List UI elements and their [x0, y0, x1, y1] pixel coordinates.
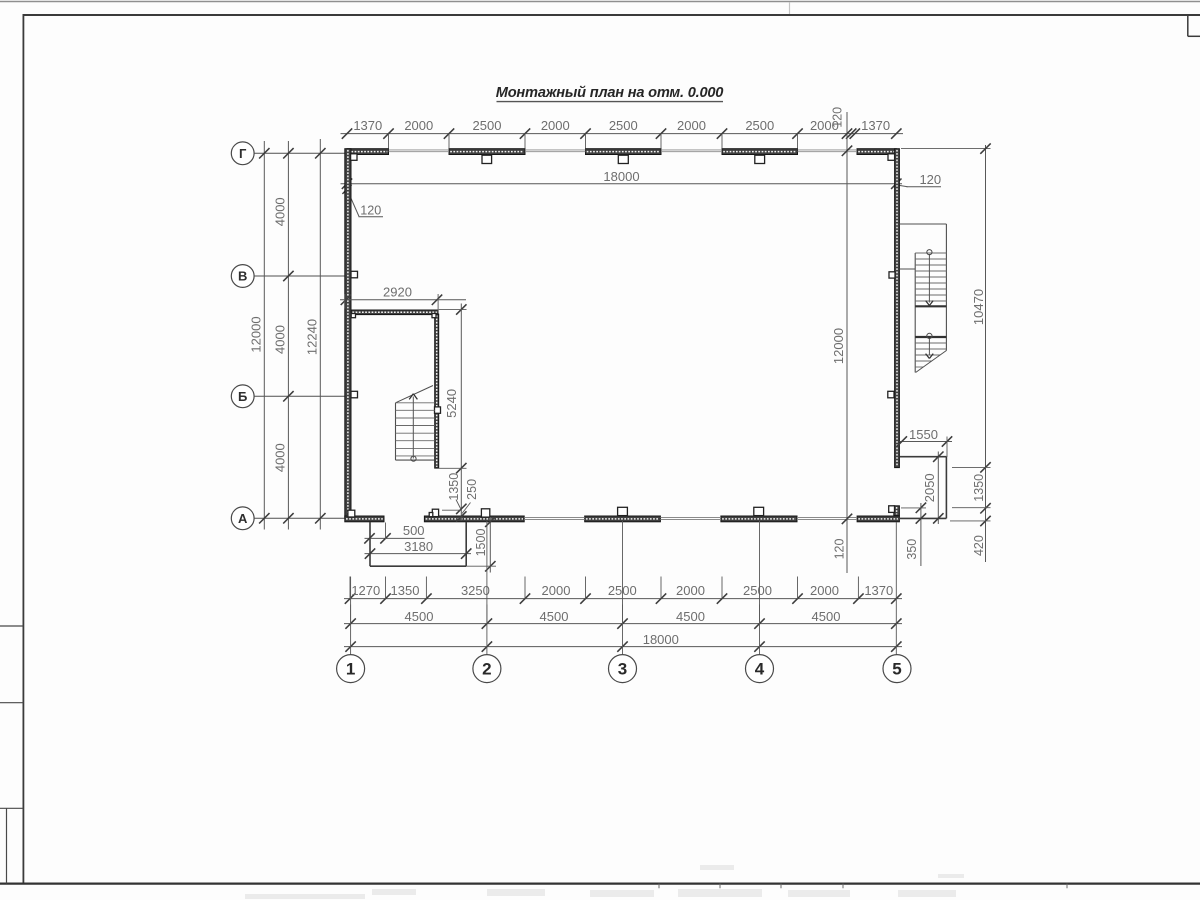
- svg-text:2000: 2000: [810, 583, 839, 598]
- svg-text:120: 120: [360, 204, 381, 218]
- svg-text:250: 250: [465, 479, 479, 500]
- svg-text:4500: 4500: [405, 609, 434, 624]
- svg-text:1: 1: [346, 660, 355, 679]
- svg-text:2000: 2000: [542, 583, 571, 598]
- svg-text:3180: 3180: [404, 539, 433, 554]
- svg-text:500: 500: [403, 523, 425, 538]
- svg-text:4500: 4500: [540, 609, 569, 624]
- svg-text:Г: Г: [239, 146, 247, 161]
- svg-text:1350: 1350: [447, 473, 461, 501]
- svg-text:120: 120: [919, 172, 941, 187]
- svg-text:1370: 1370: [861, 118, 890, 133]
- svg-text:1500: 1500: [474, 529, 488, 557]
- svg-text:2000: 2000: [677, 118, 706, 133]
- svg-text:2000: 2000: [676, 583, 705, 598]
- svg-text:2050: 2050: [922, 473, 937, 502]
- svg-text:1270: 1270: [351, 583, 380, 598]
- svg-text:1370: 1370: [864, 583, 893, 598]
- svg-text:2500: 2500: [609, 118, 638, 133]
- svg-text:4000: 4000: [273, 443, 288, 472]
- svg-text:120: 120: [833, 539, 847, 560]
- svg-text:420: 420: [972, 535, 986, 556]
- svg-text:4000: 4000: [273, 197, 288, 226]
- svg-text:1350: 1350: [972, 474, 986, 502]
- svg-text:2000: 2000: [404, 118, 433, 133]
- svg-text:А: А: [238, 511, 248, 526]
- svg-text:5: 5: [892, 660, 901, 679]
- svg-text:4000: 4000: [273, 325, 288, 354]
- svg-text:1370: 1370: [353, 118, 382, 133]
- svg-text:4: 4: [755, 660, 765, 679]
- svg-text:5240: 5240: [444, 389, 459, 418]
- svg-text:1350: 1350: [391, 583, 420, 598]
- svg-text:2: 2: [482, 660, 491, 679]
- svg-text:2000: 2000: [541, 118, 570, 133]
- svg-text:Б: Б: [238, 389, 247, 404]
- svg-text:120: 120: [831, 107, 845, 128]
- svg-text:10470: 10470: [971, 289, 986, 325]
- svg-text:2500: 2500: [745, 118, 774, 133]
- svg-text:18000: 18000: [603, 169, 639, 184]
- svg-text:3: 3: [618, 660, 627, 679]
- svg-text:1550: 1550: [909, 427, 938, 442]
- svg-text:4500: 4500: [676, 609, 705, 624]
- svg-text:В: В: [238, 269, 247, 284]
- svg-text:18000: 18000: [643, 632, 679, 647]
- svg-text:Монтажный план на отм. 0.000: Монтажный план на отм. 0.000: [496, 85, 724, 101]
- svg-text:350: 350: [905, 539, 919, 560]
- svg-text:2920: 2920: [383, 284, 412, 299]
- svg-text:3250: 3250: [461, 583, 490, 598]
- svg-text:12000: 12000: [831, 328, 846, 364]
- svg-text:12000: 12000: [249, 316, 264, 352]
- svg-text:4500: 4500: [812, 609, 841, 624]
- svg-text:12240: 12240: [305, 319, 320, 355]
- svg-text:2500: 2500: [473, 118, 502, 133]
- svg-text:2500: 2500: [743, 583, 772, 598]
